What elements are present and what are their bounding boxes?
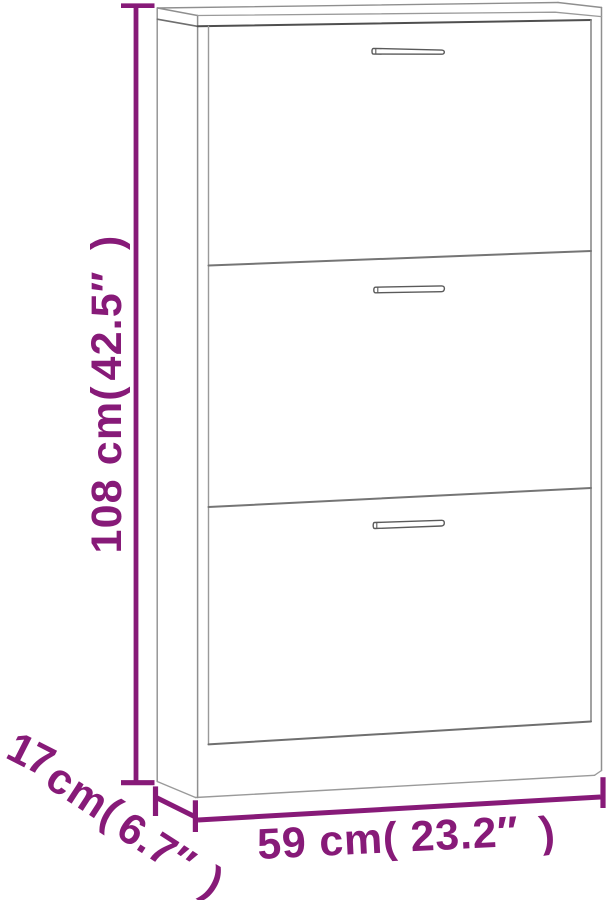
svg-text:59 cm( 23.2″: 59 cm( 23.2″ [256, 808, 520, 869]
svg-text:42.5″: 42.5″ [83, 270, 131, 380]
svg-text:): ) [83, 236, 131, 250]
svg-text:): ) [195, 858, 231, 900]
svg-text:): ) [537, 807, 558, 857]
svg-text:cm(: cm( [38, 753, 132, 837]
svg-text:108 cm(: 108 cm( [83, 385, 131, 553]
